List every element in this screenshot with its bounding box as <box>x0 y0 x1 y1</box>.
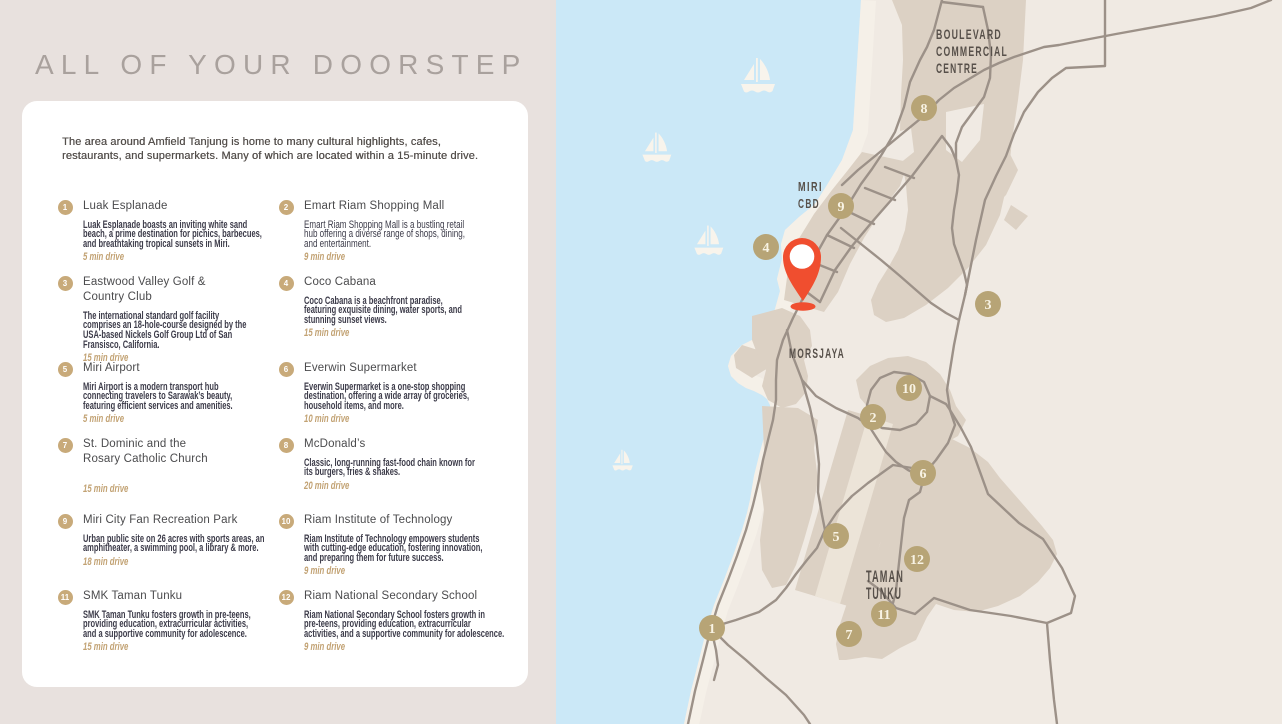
svg-text:CBD: CBD <box>798 197 820 211</box>
svg-text:11: 11 <box>877 608 890 623</box>
svg-text:BOULEVARD: BOULEVARD <box>936 26 1002 42</box>
svg-text:4: 4 <box>763 241 770 256</box>
svg-text:8: 8 <box>921 102 928 117</box>
svg-text:MORSJAYA: MORSJAYA <box>789 345 845 361</box>
svg-text:9: 9 <box>838 200 845 215</box>
svg-text:TAMAN: TAMAN <box>866 568 904 586</box>
svg-text:12: 12 <box>910 553 924 568</box>
svg-text:1: 1 <box>709 622 716 637</box>
svg-text:3: 3 <box>985 298 992 313</box>
svg-text:2: 2 <box>870 411 877 426</box>
svg-text:COMMERCIAL: COMMERCIAL <box>936 43 1008 59</box>
svg-text:MIRI: MIRI <box>798 180 823 194</box>
svg-text:5: 5 <box>833 530 840 545</box>
svg-text:6: 6 <box>920 467 927 482</box>
svg-text:10: 10 <box>902 382 916 397</box>
svg-text:CENTRE: CENTRE <box>936 60 978 76</box>
svg-text:TUNKU: TUNKU <box>866 585 902 603</box>
svg-text:7: 7 <box>846 628 853 643</box>
